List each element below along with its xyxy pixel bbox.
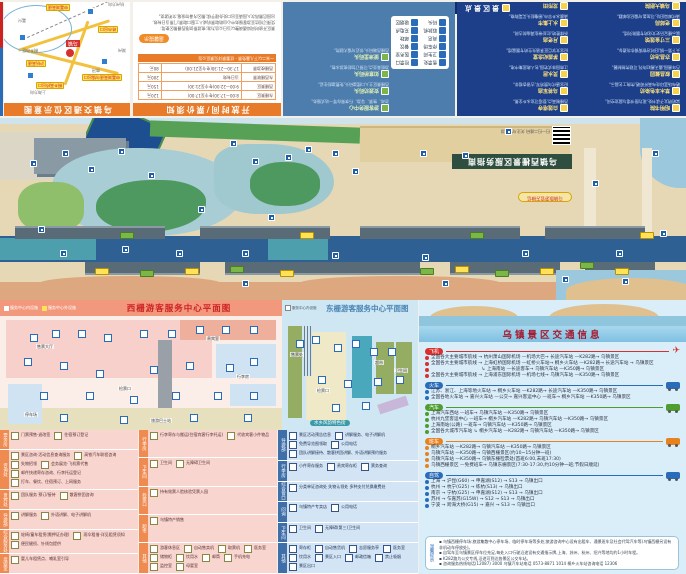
fold-edge [0, 2, 3, 116]
facility-label: 充电点 [396, 28, 410, 34]
traffic-section-rule [446, 385, 663, 386]
legend-item-label: 邮筒 [212, 554, 220, 559]
legend-item-icon [11, 452, 19, 460]
route-bullet [425, 498, 429, 502]
map-tag [495, 270, 509, 277]
legend-row-cell: 景区活动预告信息讲解服务、电子讲解机免费导览图领取公用电话团队讲解接待、散客拼团… [287, 430, 418, 460]
map-tag [300, 232, 314, 239]
legend-row-header: 其他 [139, 543, 148, 573]
legend-item: 邮政信箱 [345, 554, 371, 562]
legend-item: 门票预售·退改签 [11, 432, 50, 440]
map-tag [420, 268, 434, 275]
legend-item-icon [150, 517, 158, 525]
legend-item-icon [289, 554, 297, 562]
map-marker [62, 150, 69, 157]
spot-marker-icon [560, 19, 568, 27]
spot-marker-icon [560, 2, 568, 10]
spot-entry: 叙昌酱园百年酱园,露天酱缸阵列,可观传统制酱。 [574, 65, 680, 78]
facility-label: 餐饮 [400, 44, 409, 50]
legend-item: 无障碍卫生间 [176, 460, 210, 468]
plan-chip [24, 358, 32, 366]
map-marker [352, 168, 359, 175]
legend-out: 服务中心外设施 [42, 305, 76, 311]
spot-name: 茅盾纪念堂 [462, 53, 568, 61]
legend-row-header: 检票口 [139, 487, 148, 514]
legend-item: 小件寄存服务 [289, 463, 323, 471]
facility-legend-item: 商店 [422, 35, 446, 42]
facility-entries: 游客服务中心咨询、售票、导游、行李寄存等一站式服务。安渡坊码头西栅景区主入口摆渡… [289, 44, 389, 112]
legend-row-header: 行李房 [278, 461, 287, 481]
facility-entry-desc: 西栅西端码头,邻近乌镇大剧院。 [289, 48, 389, 53]
wuzhen-dot [66, 49, 74, 57]
traffic-section-rule [446, 407, 663, 408]
legend-item-label: 卫生间 [299, 525, 311, 530]
spot-marker-icon [672, 2, 680, 10]
legend-item-icon [331, 441, 339, 449]
legend-pink-left: 票务房门票预售·退改签住宿预订登记咨询处景区咨询·活动信息查询服务高铁汽车联程咨… [0, 430, 138, 574]
map-marker [242, 250, 249, 257]
legend-item: 高铁汽车联程咨询 [74, 452, 116, 460]
legend-item-label: 分类单证咨询处 失物认领处 多种支付兑换缴费处 [299, 484, 386, 489]
east-plan: 服务中心内设施 东栅游客服务中心平面图 水乡风韵特色街 售票处检票口超市卫生间 [282, 300, 418, 430]
spot-marker-icon [672, 53, 680, 61]
facility-label: 停车场 [424, 44, 438, 50]
legend-row: 导游部景区活动预告信息讲解服务、电子讲解机免费导览图领取公用电话团队讲解接待、散… [278, 430, 418, 461]
route-bullet [425, 362, 429, 366]
plan-label: 旅游巴士站 [150, 418, 172, 423]
legend-blue: 导游部景区活动预告信息讲解服务、电子讲解机免费导览图领取公用电话团队讲解接待、散… [278, 430, 418, 574]
spot-marker-icon [560, 87, 568, 95]
legend-item: 团队服务 预订/接待 [11, 492, 56, 500]
spot-entry: 草木本色染坊晒布场蓝印花布高杆晾晒,传统工艺展示。 [574, 82, 680, 95]
spot-name: 草木本色染坊 [574, 87, 680, 95]
spot-desc: 晒布场蓝印花布高杆晾晒,传统工艺展示。 [574, 82, 680, 87]
traffic-section-label: 班车 [425, 438, 443, 445]
legend-item-label: 自动售卖机 [194, 545, 214, 550]
legend-item: 取票机 [218, 545, 240, 553]
spot-marker-icon [672, 87, 680, 95]
plan-chip [296, 340, 304, 348]
spot-marker-icon [560, 104, 568, 112]
map-marker [176, 250, 183, 257]
legend-row: 贵宾处团队服务 预订/接待散客拼团咨询 [0, 490, 138, 510]
legend-item: 自动售卖机 [184, 545, 214, 553]
legend-item: 公用电话 [331, 504, 357, 512]
legend-item: 景区活动预告信息 [289, 432, 331, 440]
traffic-section-rule [446, 475, 663, 476]
ticket-row: 西栅景区9:00—22:00(冬令至21:30)150元 [139, 82, 276, 91]
plan-label: 行李房 [236, 374, 250, 379]
facility-legend-item: 取款机 [422, 27, 446, 34]
legend-item-icon [41, 461, 49, 469]
legend-item-label: 讲解服务 [21, 512, 37, 517]
facility-icon [439, 43, 446, 50]
legend-item-label: 团队讲解接待、散客拼团讲解、外语讲解预约服务 [299, 450, 387, 455]
legend-row: 其他寄存柜自动售货机志愿服务亭医务室饮用水景区入口邮政信箱禁止吸烟景区出口 [278, 543, 418, 574]
legend-item-icon [150, 545, 158, 553]
plan-label: 售票大厅 [36, 344, 54, 349]
route-bullet [425, 486, 429, 490]
legend-item: 乌镇特产销售 [150, 517, 184, 525]
lawn [18, 182, 84, 232]
legend-item: 公用电话 [331, 441, 357, 449]
panel-location-title: 乌镇交通区位示意图 [4, 103, 130, 116]
legend-item: 寄存柜 [289, 545, 311, 553]
spot-entry: 昭明书院梁昭明太子读书处,现为图书馆与展览空间。 [574, 99, 680, 112]
legend-item: 医务室 [383, 545, 405, 553]
traffic-section-label: 自驾 [425, 472, 443, 479]
legend-item: 卫生间 [289, 525, 311, 533]
wuzhen-label: 乌镇 [66, 40, 80, 47]
legend-item-icon [184, 545, 192, 553]
spot-desc: 天下第一锅,旧时冶铁铸锅作坊遗存。 [574, 48, 680, 53]
legend-item-icon [150, 554, 158, 562]
spot-name: 白莲塔寺 [462, 104, 568, 112]
spot-marker-icon [560, 70, 568, 78]
legend-item-label: 代收宾客小件物品 [237, 432, 269, 437]
legend-item-label: 公用电话 [341, 441, 357, 446]
legend-item-icon [11, 479, 19, 487]
map-marker [505, 128, 512, 135]
legend-row-header: 卫生间 [278, 523, 287, 543]
legend-item-label: 无障碍卫生间 [186, 460, 210, 465]
legend-item: 失物招领 [11, 461, 37, 469]
plan-chip [214, 392, 222, 400]
plan-chip [222, 326, 230, 334]
qr-tip: 扫一扫二维码 关注乌镇旅游 [494, 128, 550, 134]
brochure-scan: 乌镇交通区位示意图 乌镇 申嘉湖高速乌镇出口 桐乡高桥出口 沪杭高速 练市出口 … [0, 0, 686, 574]
facility-icon [411, 35, 418, 42]
facility-legend-item: 售票处 [422, 59, 446, 66]
facility-icon [411, 59, 418, 66]
legend-row-cell: 行李寄存与搬运(住宿宾客行李托运)代收宾客小件物品 [148, 430, 277, 457]
facility-entry: 如意桥码头游船乘坐点,可预订包船夜游水巷。 [289, 65, 389, 78]
legend-item-label: 免费导览图领取 [299, 441, 327, 446]
facility-icon [411, 19, 418, 26]
facility-legend-item: 医务室 [394, 51, 418, 58]
map-marker [118, 148, 125, 155]
plan-label: 停车场 [24, 412, 38, 417]
spot-name: 乌将军庙 [462, 87, 568, 95]
legend-item-label: 便民缝纫、针线包提供 [21, 541, 61, 546]
legend-item: 会务展览·飞机票代售 [41, 461, 88, 469]
traffic-section-label: 飞机 [425, 348, 443, 355]
legend-item-label: 景区入口 [325, 554, 341, 559]
legend-row-cell: 门票预售·退改签住宿预订登记 [9, 430, 138, 449]
legend-row-cell: 卫生间无障碍卫生间 [148, 458, 277, 485]
legend-item-icon [11, 541, 19, 549]
legend-row-cell: 卫生间无障碍(第三)卫生间 [287, 523, 418, 543]
facility-legend-item: 码头 [422, 19, 446, 26]
legend-row-header: 行李房 [139, 430, 148, 457]
spot-name: 昭明书院 [574, 104, 680, 112]
legend-row-header: 票务房 [0, 430, 9, 449]
legend-pink-right: 行李房行李寄存与搬运(住宿宾客行李托运)代收宾客小件物品卫生间卫生间无障碍卫生间… [139, 430, 277, 574]
map-tag [280, 270, 294, 277]
legend-item: 饮用水 [289, 554, 311, 562]
legend-row: 导游部讲解服务外语讲解、电子讲解机 [0, 510, 138, 530]
map-tag [120, 232, 134, 239]
legend-item-label: 医务室 [393, 545, 405, 550]
legend-row: 卫生间卫生间无障碍(第三)卫生间 [278, 523, 418, 544]
spot-entry: 白莲塔寺西栅制高点,登塔可览水乡全景。 [462, 99, 568, 112]
traffic-section-header: 火车 [425, 382, 680, 389]
location-minimap: 乌镇 申嘉湖高速乌镇出口 桐乡高桥出口 沪杭高速 练市出口 申嘉湖高速 湖州 南… [4, 2, 130, 103]
notice-text: 景区开放时间如遇调整以当日公告为准;夜游票仅限西栅景区使用;凭预订短信至游客服务… [139, 13, 275, 31]
ticket-cell: 8:00—17:30(冬令至17:00) [161, 91, 241, 100]
legend-item-label: 门票预售·退改签 [21, 432, 50, 437]
facility-label: 邮政 [400, 36, 409, 42]
ticket-cell: 150元 [139, 82, 162, 91]
facility-icon [411, 43, 418, 50]
legend-item-label: 会务展览·飞机票代售 [51, 461, 88, 466]
legend-item-label: 医务室 [254, 545, 266, 550]
facility-entry: 望津里码头西栅西端码头,邻近乌镇大剧院。 [289, 48, 389, 61]
traffic-route: 全国各大主要城市航线 → 上海浦东国际机场 —机场七线→ 乌镇汽车站 —K350… [425, 373, 680, 379]
bus-icon [666, 404, 680, 411]
spot-name: 三寸金莲馆 [574, 36, 680, 44]
plan-chip [186, 362, 194, 370]
legend-item-icon [224, 554, 232, 562]
map-marker [242, 280, 249, 287]
ticket-cell: 80元 [139, 64, 162, 73]
legend-item: 邮件快递寄存咨询、行李托运登记 [11, 470, 81, 478]
legend-item-icon [11, 556, 19, 564]
qr-code [552, 126, 571, 145]
legend-item: 景区出口 [289, 563, 315, 571]
legend-item-icon [150, 460, 158, 468]
legend-item: 自动售货机 [315, 545, 345, 553]
traffic-section-rule [446, 351, 669, 352]
ticket-cell: 当日有效 [161, 73, 241, 82]
map-tag [615, 268, 629, 275]
legend-item-icon [176, 563, 184, 571]
legend-row: 卫生间卫生间无障碍卫生间 [139, 458, 277, 486]
map-marker [252, 158, 259, 165]
facility-legend-item: 卫生间 [422, 51, 446, 58]
route-text: 宁波 → 跨海大桥(G15) → 嘉兴 → S13 → 乌镇出口 [431, 503, 535, 509]
plane-icon: ✈ [672, 347, 680, 355]
legend-item: 医务室 [244, 545, 266, 553]
spot-entry: 乌将军庙纪念唐代乌赞将军,古银杏相伴。 [462, 82, 568, 95]
spot-desc: 百年酱园,露天酱缸阵列,可观传统制酱。 [574, 65, 680, 70]
hwy-chip: 练市出口 [98, 26, 118, 33]
facility-legend-item: 邮政 [394, 35, 418, 42]
spot-entry: 水上集市清晨水乡早市,摇橹船头买菜购物。 [462, 14, 568, 27]
legend-item: 志愿服务亭 [349, 545, 379, 553]
legend-item-label: 轮椅/童车租赁(需押证办理) [21, 532, 69, 537]
legend-row-header: 导游部 [278, 430, 287, 460]
traffic-section-header: 自驾 [425, 472, 680, 479]
legend-item-icon [361, 463, 369, 471]
map-marker [198, 206, 205, 213]
legend-row-header: 卫生间 [139, 458, 148, 485]
entry-marker-icon [381, 104, 389, 112]
traffic-title: 乌镇景区交通信息 [419, 326, 686, 342]
legend-item-label: 游客休息区 [160, 545, 180, 550]
map-marker [38, 226, 45, 233]
facility-entry-desc: 西栅景区主入口摆渡码头,免费渡船往返。 [289, 82, 389, 87]
map-marker [30, 160, 37, 167]
legend-item: 分类单证咨询处 失物认领处 多种支付兑换缴费处 [289, 484, 386, 492]
facility-label: 卫生间 [424, 52, 438, 58]
plan-label: 超市 [374, 360, 384, 365]
tip-line: ▪ 自驾车至乌镇景区停车位充足,每处入口行驶沿途设有交通指示牌,上海、苏州、杭州… [439, 550, 675, 556]
traffic-route: 全国各大城市汽车站 ↳ 桐乡汽车站 —K282路→ 乌镇汽车站 —K350路→ … [425, 429, 680, 435]
hwy-chip: 沪杭高速 [26, 60, 46, 67]
legend-item-label: 乌镇特产专卖店 [299, 504, 327, 509]
spot-name: 老邮局 [574, 19, 680, 27]
route-bullet [425, 446, 429, 450]
ticket-cell: 东栅景区 [241, 91, 275, 100]
spot-name: 龙形田 [462, 2, 568, 10]
legend-item: 住宿预订登记 [54, 432, 88, 440]
legend-row-cell: 分类单证咨询处 失物认领处 多种支付兑换缴费处 [287, 482, 418, 502]
train-icon [666, 382, 680, 389]
plan-chip [104, 334, 112, 342]
legend-row: 咨询处景区咨询·活动信息查询服务高铁汽车联程咨询失物招领会务展览·飞机票代售邮件… [0, 450, 138, 490]
spot-marker-icon [672, 104, 680, 112]
tips-label: 温馨提示 [426, 537, 436, 569]
legend-item-label: 监控室 [160, 563, 172, 568]
plan-chip [130, 396, 138, 404]
plan-label: 检票口 [316, 388, 330, 393]
map-marker [652, 150, 659, 157]
facility-entry-desc: 咨询、售票、导游、行李寄存等一站式服务。 [289, 99, 389, 104]
legend-row: 综合服务处轮椅/童车租赁(需押证办理)雨伞租借·详见租赁须知便民缝纫、针线包提供 [0, 530, 138, 554]
legend-item-label: 雨伞租借·详见租赁须知 [83, 532, 124, 537]
legend-row: 问询乌镇特产专卖店公用电话 [278, 502, 418, 523]
legend-row-cell: 景区咨询·活动信息查询服务高铁汽车联程咨询失物招领会务展览·飞机票代售邮件快递寄… [9, 450, 138, 489]
west-plan-title: 西栅游客服务中心平面图 [76, 302, 282, 314]
legend-row-header: 问询 [278, 502, 287, 522]
legend-row-header: 其他 [278, 543, 287, 573]
spot-marker-icon [672, 70, 680, 78]
plan-chip [52, 330, 60, 338]
facility-icon [439, 59, 446, 66]
ticket-cell: 9:00—22:00(冬令至21:30) [161, 82, 241, 91]
legend-item-icon [176, 554, 184, 562]
entry-marker-icon [381, 53, 389, 61]
legend-row-header: 综合窗口 [278, 482, 287, 502]
hwy-chip: 申嘉湖高速乌镇出口 [82, 74, 122, 81]
ticket-cell: 17:30—21:30(冬令至21:00) [161, 64, 241, 73]
spot-name: 亦昌冶坊 [574, 53, 680, 61]
map-marker [622, 278, 629, 285]
plan-chip [96, 370, 104, 378]
legend-item-icon [74, 452, 82, 460]
plan-chip [60, 362, 68, 370]
legend-item-icon [11, 492, 19, 500]
car-icon [666, 472, 680, 479]
map-marker [230, 140, 237, 147]
notice-line: 出园后需再次入园请至出口处办理手续;景区内请勿吸烟,文明游览。 [139, 13, 275, 19]
facility-entry: 游客服务中心咨询、售票、导游、行李寄存等一站式服务。 [289, 99, 389, 112]
legend-item-icon [11, 432, 19, 440]
legend-row: 行李房行李寄存与搬运(住宿宾客行李托运)代收宾客小件物品 [139, 430, 277, 458]
map-tag [95, 268, 109, 275]
plan-chip [226, 364, 234, 372]
map-tag [140, 270, 154, 277]
legend-item-icon [349, 545, 357, 553]
east-bottom-label: 水乡风韵特色街 [310, 420, 350, 426]
legend-item-label: 乌镇特产销售 [160, 517, 184, 522]
map-tag [185, 268, 199, 275]
route-bullet [425, 418, 429, 422]
facility-entry-name: 如意桥码头 [289, 70, 389, 78]
spot-entry: 老邮局清代邮局旧址,可加盖乌镇纪念邮戳。 [574, 14, 680, 27]
legend-item-icon [315, 545, 323, 553]
legend-item-label: 取票机 [228, 545, 240, 550]
plan-chip [168, 330, 176, 338]
facility-legend-box: 售票处检票口卫生间医务室停车场餐饮商店邮政取款机充电点码头吸烟区 [391, 16, 449, 69]
legend-item: 卫生间 [150, 460, 172, 468]
legend-item: 手机充电 [224, 554, 250, 562]
legend-item: 母婴室 [176, 563, 198, 571]
legend-item-icon [11, 532, 19, 540]
panel-spots: 景区景点 昭明书院梁昭明太子读书处,现为图书馆与展览空间。草木本色染坊晒布场蓝印… [457, 2, 686, 116]
facility-entry-name: 游客服务中心 [289, 104, 389, 112]
legend-item: 饮用水 [176, 554, 198, 562]
legend-item-label: 母婴室 [186, 563, 198, 568]
legend-item: 票务查询 [361, 463, 387, 471]
legend-item-icon [289, 484, 297, 492]
map-marker [462, 152, 469, 159]
legend-item-label: 贵宾寄存柜 [337, 463, 357, 468]
legend-item-icon [289, 525, 297, 533]
plan-chip [250, 326, 258, 334]
route-bullet [425, 458, 429, 462]
legend-row-cell: 寄存柜自动售货机志愿服务亭医务室饮用水景区入口邮政信箱禁止吸烟景区出口 [287, 543, 418, 573]
west-plan: 服务中心内设施 服务中心外设施 西栅游客服务中心平面图 售票大厅检票口贵宾室行李… [0, 300, 282, 430]
legend-item-label: 储物柜 [160, 554, 172, 559]
facility-legend-item: 吸烟区 [394, 19, 418, 26]
service-banner: 乌镇西栅景区服务指南 [452, 154, 572, 169]
tip-line: ▪ 咨询服务热线电话(12087) 3000 乌镇汽车站电话 0573-8871… [439, 561, 675, 567]
legend-item: 无障碍(第三)卫生间 [315, 525, 360, 533]
map-marker [122, 246, 129, 253]
plan-chip [172, 392, 180, 400]
legend-item-label: 行李寄存与搬运(住宿宾客行李托运) [160, 432, 223, 437]
map-marker [60, 250, 67, 257]
legend-item: 讲解服务、电子讲解机 [335, 432, 385, 440]
legend-item: 便民缝纫、针线包提供 [11, 541, 61, 549]
shuttle-icon [666, 438, 680, 445]
stairs [304, 326, 312, 376]
spot-name: 叙昌酱园 [574, 70, 680, 78]
ticket-cell: 东西栅联票 [241, 73, 275, 82]
legend-item-label: 景区咨询·活动信息查询服务 [21, 452, 70, 457]
legend-item: 景区咨询·活动信息查询服务 [11, 452, 70, 460]
legend-item-icon [327, 463, 335, 471]
route-bullet [425, 412, 429, 416]
panoramic-map: 扫一扫二维码 关注乌镇旅游 乌镇西栅景区服务指南 乌镇旅游官方微信 [0, 118, 686, 300]
spot-marker-icon [560, 36, 568, 44]
ticket-cell: 西栅景区 [241, 82, 275, 91]
route-bullet [425, 390, 429, 394]
legend-item: 行李寄存与搬运(住宿宾客行李托运) [150, 432, 223, 440]
spot-marker-icon [672, 36, 680, 44]
legend-item-icon [331, 504, 339, 512]
legend-item: 雨伞租借·详见租赁须知 [73, 532, 124, 540]
legend-item-icon [202, 554, 210, 562]
spot-entry: 龙形田巨型龙形稻田景观,四季色彩不同。 [462, 2, 568, 10]
route-bullet [425, 424, 429, 428]
legend-item-label: 婴儿车租赁点、哺乳室引导 [21, 556, 69, 561]
route-bullet [425, 374, 429, 378]
legend-item-label: 邮件快递寄存咨询、行李托运登记 [21, 470, 81, 475]
spot-desc: 梁昭明太子读书处,现为图书馆与展览空间。 [574, 99, 680, 104]
